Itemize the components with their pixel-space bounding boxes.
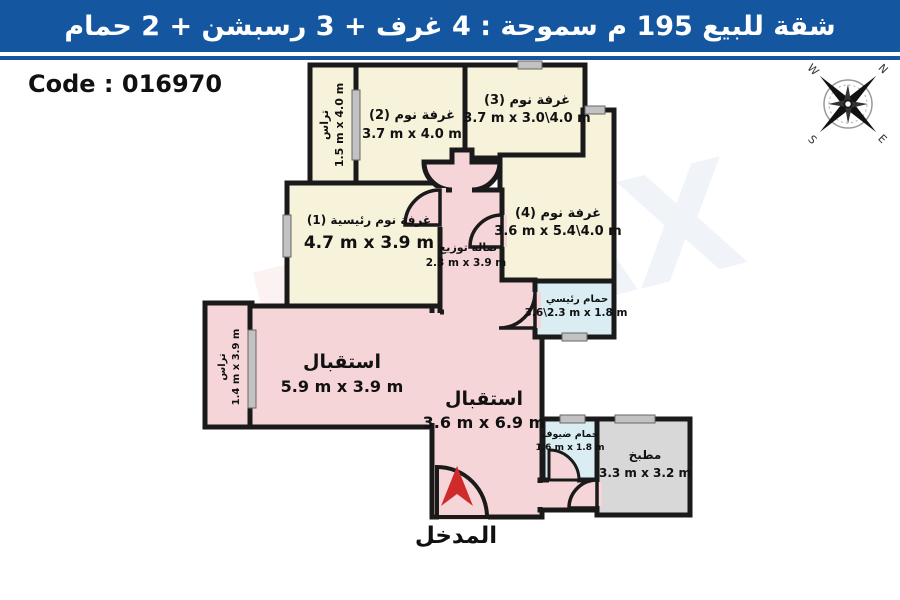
window-kitchen	[615, 415, 655, 423]
reception1-name: استقبال	[303, 351, 381, 373]
master-bath-name: حمام رئيسي	[546, 294, 608, 305]
entrance-label: المدخل	[415, 523, 497, 549]
window-terrace-top	[352, 90, 360, 160]
hall-dims: 2.3 m x 3.9 m	[426, 257, 507, 269]
bedroom3-name: غرفة نوم (3)	[484, 93, 570, 108]
compass-s: S	[805, 133, 819, 147]
master-bedroom-dims: 4.7 m x 3.9 m	[304, 233, 434, 253]
terrace-left-dims: 1.4 m x 3.9 m	[231, 329, 242, 406]
floorplan-canvas: Code : 016970 RE MAX N S E W	[0, 0, 900, 600]
compass-icon: N S E W	[769, 26, 900, 182]
opening-corridor	[536, 483, 548, 507]
window-bedroom3	[518, 61, 542, 69]
bedroom4-name: غرفة نوم (4)	[515, 206, 601, 221]
hall-name: صالة توزيع	[439, 241, 497, 254]
opening-hall-reception	[444, 301, 530, 317]
floorplan-page: شقة للبيع 195 م سموحة : 4 غرف + 3 رسبشن …	[0, 0, 900, 600]
reception2-dims: 3.6 m x 6.9 m	[423, 413, 546, 432]
bedroom2-dims: 3.7 m x 4.0 m	[362, 127, 462, 142]
window-guest-bath	[560, 415, 585, 423]
bedroom4-dims: 3.6 m x 5.4\4.0 m	[494, 224, 621, 239]
opening-receptions	[426, 313, 440, 423]
terrace-top-name: تراس	[318, 110, 331, 140]
kitchen-name: مطبخ	[629, 448, 662, 462]
terrace-left-floor	[205, 303, 252, 427]
reception1-dims: 5.9 m x 3.9 m	[281, 377, 404, 396]
compass-n: N	[875, 61, 890, 76]
guest-bath-name: حمام ضيوف	[541, 429, 598, 440]
window-master-bedroom	[283, 215, 291, 257]
kitchen-dims: 3.3 m x 3.2 m	[599, 466, 691, 480]
reception2-name: استقبال	[445, 388, 523, 410]
listing-code: Code : 016970	[28, 70, 222, 98]
window-master-bath	[562, 333, 587, 341]
master-bath-dims: 3.6\2.3 m x 1.8 m	[525, 307, 628, 319]
terrace-top-dims: 1.5 m x 4.0 m	[333, 83, 346, 167]
window-terrace-left	[248, 330, 256, 408]
bedroom2-name: غرفة نوم (2)	[369, 108, 455, 123]
compass-e: E	[875, 132, 889, 146]
compass-w: W	[805, 61, 822, 78]
bedroom3-dims: 3.7 m x 3.0\4.0 m	[463, 111, 590, 126]
guest-bath-dims: 1.6 m x 1.8 m	[536, 443, 605, 453]
master-bedroom-name: غرفة نوم رئيسية (1)	[307, 213, 431, 228]
terrace-left-name: تراس	[217, 353, 228, 380]
